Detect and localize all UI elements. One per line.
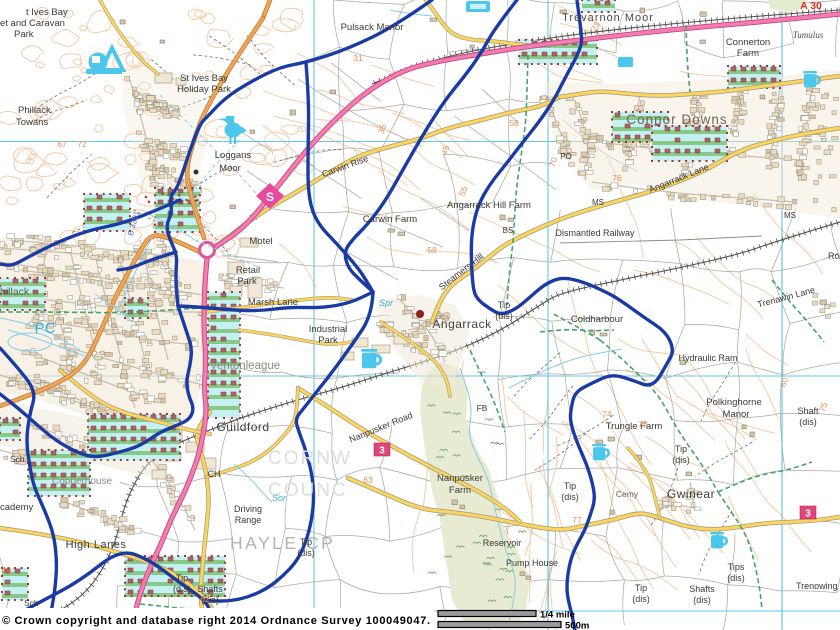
svg-text:Shafts: Shafts: [197, 584, 223, 594]
svg-text:46: 46: [1, 565, 11, 575]
svg-text:PO: PO: [560, 152, 572, 161]
svg-text:Sch: Sch: [10, 454, 25, 464]
svg-text:Nanpusker: Nanpusker: [437, 473, 483, 484]
svg-text:Tumulus: Tumulus: [793, 30, 824, 40]
svg-text:Rosew: Rosew: [828, 251, 840, 261]
svg-text:(dis): (dis): [672, 455, 690, 465]
svg-text:Cemy: Cemy: [616, 489, 639, 499]
svg-text:Park: Park: [318, 335, 338, 346]
svg-text:76: 76: [612, 173, 622, 183]
svg-text:72: 72: [77, 139, 87, 149]
svg-text:St Ives Bay: St Ives Bay: [180, 73, 228, 84]
svg-text:Tip: Tip: [675, 444, 687, 454]
svg-text:Connor Downs: Connor Downs: [626, 112, 727, 127]
svg-text:Holiday Park: Holiday Park: [177, 84, 231, 95]
svg-text:3: 3: [805, 509, 811, 520]
svg-text:Tips: Tips: [728, 562, 745, 572]
svg-text:Pulsack Manor: Pulsack Manor: [341, 22, 404, 33]
svg-text:PC: PC: [35, 320, 56, 337]
svg-text:Phillack: Phillack: [18, 105, 51, 116]
svg-text:A 30: A 30: [800, 0, 822, 12]
svg-text:CH: CH: [208, 469, 221, 479]
svg-text:Farm: Farm: [449, 485, 471, 496]
svg-text:Copperhouse: Copperhouse: [52, 476, 112, 487]
svg-text:Dismantled Railway: Dismantled Railway: [555, 228, 635, 238]
svg-text:500m: 500m: [565, 621, 589, 630]
svg-text:hillack: hillack: [0, 286, 30, 298]
svg-text:Manor: Manor: [723, 409, 750, 420]
svg-text:(dis): (dis): [727, 573, 745, 583]
svg-text:77: 77: [572, 515, 582, 525]
svg-text:Moor: Moor: [219, 163, 241, 174]
svg-text:Range: Range: [235, 515, 262, 525]
svg-text:58: 58: [509, 118, 519, 128]
svg-text:MS: MS: [784, 211, 796, 220]
svg-text:Spr: Spr: [379, 298, 394, 308]
svg-text:(dis): (dis): [561, 492, 579, 502]
svg-text:Park: Park: [237, 276, 257, 287]
svg-text:74: 74: [602, 409, 612, 419]
svg-text:t Ives Bay: t Ives Bay: [26, 7, 68, 18]
svg-text:Sch: Sch: [24, 598, 39, 608]
svg-text:et and Caravan: et and Caravan: [0, 18, 65, 29]
svg-text:(dis): (dis): [632, 594, 650, 604]
svg-text:Farm: Farm: [737, 48, 759, 59]
svg-text:Driving: Driving: [234, 504, 262, 514]
svg-text:Tip: Tip: [564, 481, 576, 491]
svg-text:(d.s): (d.s): [173, 584, 191, 594]
svg-text:Sor: Sor: [272, 493, 287, 503]
svg-text:High Lanes: High Lanes: [66, 539, 127, 551]
svg-text:Marsh Lane: Marsh Lane: [248, 297, 298, 308]
svg-text:67: 67: [57, 139, 67, 149]
svg-text:Reservoir: Reservoir: [483, 538, 522, 548]
svg-text:HAYLE CP: HAYLE CP: [230, 533, 335, 553]
svg-text:Trenowing: Trenowing: [796, 581, 838, 591]
svg-text:cademy: cademy: [0, 502, 34, 513]
svg-text:3: 3: [379, 446, 385, 457]
svg-text:CORNW: CORNW: [268, 448, 352, 469]
svg-text:FB: FB: [477, 403, 488, 413]
svg-text:Connerton: Connerton: [726, 37, 770, 48]
svg-text:Tip: Tip: [635, 583, 647, 593]
svg-text:Trungle Farm: Trungle Farm: [606, 421, 663, 432]
svg-text:(dis): (dis): [297, 548, 315, 558]
svg-text:62: 62: [200, 594, 210, 604]
svg-text:(dis): (dis): [693, 595, 711, 605]
svg-text:Industrial: Industrial: [309, 324, 348, 335]
svg-text:Loggans: Loggans: [215, 150, 252, 161]
svg-text:MS: MS: [592, 198, 604, 207]
svg-text:BS: BS: [503, 226, 514, 235]
svg-text:Tip: Tip: [300, 537, 312, 547]
svg-text:31: 31: [353, 53, 363, 63]
svg-text:Tip: Tip: [498, 300, 510, 310]
svg-text:(dis): (dis): [799, 417, 817, 427]
svg-text:Retail: Retail: [236, 265, 260, 276]
svg-text:Motel: Motel: [249, 236, 272, 247]
svg-text:Gwinear: Gwinear: [667, 487, 715, 501]
svg-text:Angarrack: Angarrack: [432, 317, 492, 331]
svg-text:S: S: [266, 190, 274, 204]
svg-text:Shaft: Shaft: [797, 406, 819, 416]
svg-text:Coldharbour: Coldharbour: [571, 314, 623, 325]
svg-text:Park: Park: [14, 29, 34, 40]
svg-text:Towans: Towans: [16, 117, 48, 128]
svg-text:(dis): (dis): [495, 311, 513, 321]
svg-text:Angarrack Hill Farm: Angarrack Hill Farm: [447, 200, 531, 211]
svg-text:Polkinghorne: Polkinghorne: [706, 397, 761, 408]
svg-text:Carwin Farm: Carwin Farm: [363, 214, 417, 225]
svg-text:Pump House: Pump House: [506, 558, 558, 568]
svg-text:78: 78: [638, 419, 648, 429]
svg-text:Trevarnon Moor: Trevarnon Moor: [562, 12, 654, 24]
svg-text:58: 58: [427, 245, 437, 255]
svg-text:Ventonleague: Ventonleague: [210, 360, 280, 372]
svg-text:Shafts: Shafts: [689, 584, 715, 594]
svg-text:Guildford: Guildford: [216, 420, 269, 434]
svg-text:Tip: Tip: [176, 573, 188, 583]
svg-text:© Crown copyright and database: © Crown copyright and database right 201…: [2, 615, 430, 627]
svg-text:63: 63: [363, 475, 373, 485]
svg-text:1/4 mile: 1/4 mile: [540, 610, 575, 621]
svg-text:Hydraulic Ram: Hydraulic Ram: [678, 353, 737, 363]
